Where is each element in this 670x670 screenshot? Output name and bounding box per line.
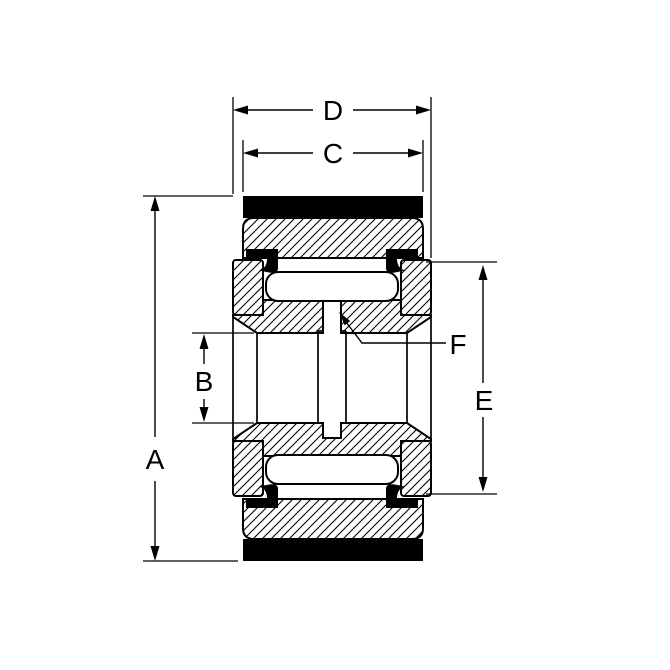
drawing-canvas: D C A B E F <box>0 0 670 670</box>
dim-label-b: B <box>195 366 214 397</box>
lube-passage <box>318 331 346 423</box>
tire-bottom <box>243 539 423 561</box>
end-plate-top-left <box>233 260 263 315</box>
dim-label-f: F <box>449 329 466 360</box>
dim-label-d: D <box>323 95 343 126</box>
dim-label-c: C <box>323 138 343 169</box>
end-plate-top-right <box>401 260 431 315</box>
tire-top <box>243 196 423 218</box>
roller-top <box>266 272 398 301</box>
dim-label-e: E <box>475 385 494 416</box>
roller-bottom <box>266 455 398 484</box>
technical-drawing: D C A B E F <box>0 0 670 670</box>
dim-label-a: A <box>146 444 165 475</box>
end-plate-bottom-right <box>401 441 431 496</box>
lube-passage-body <box>318 331 346 423</box>
end-plate-bottom-left <box>233 441 263 496</box>
